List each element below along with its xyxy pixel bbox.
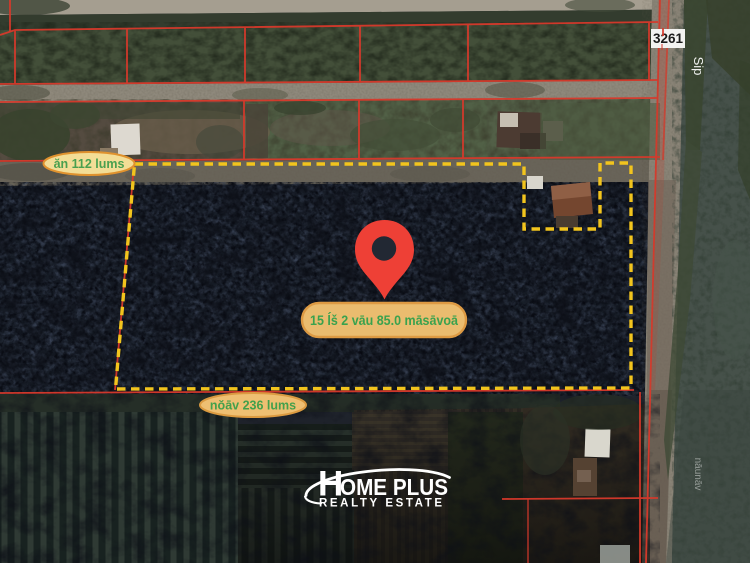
svg-text:Sip: Sip [691,57,706,76]
svg-text:OME PLUS: OME PLUS [340,474,448,500]
svg-text:ăn 112 lums: ăn 112 lums [54,157,125,171]
svg-text:3261: 3261 [653,31,684,46]
svg-text:REALTY ESTATE: REALTY ESTATE [319,498,442,510]
svg-text:15 ĺš 2 vāu 85.0 māsāvoā: 15 ĺš 2 vāu 85.0 māsāvoā [310,313,458,328]
svg-text:nŏāv 236 lums: nŏāv 236 lums [210,399,296,413]
svg-text:nāunāv: nāunāv [692,458,703,491]
